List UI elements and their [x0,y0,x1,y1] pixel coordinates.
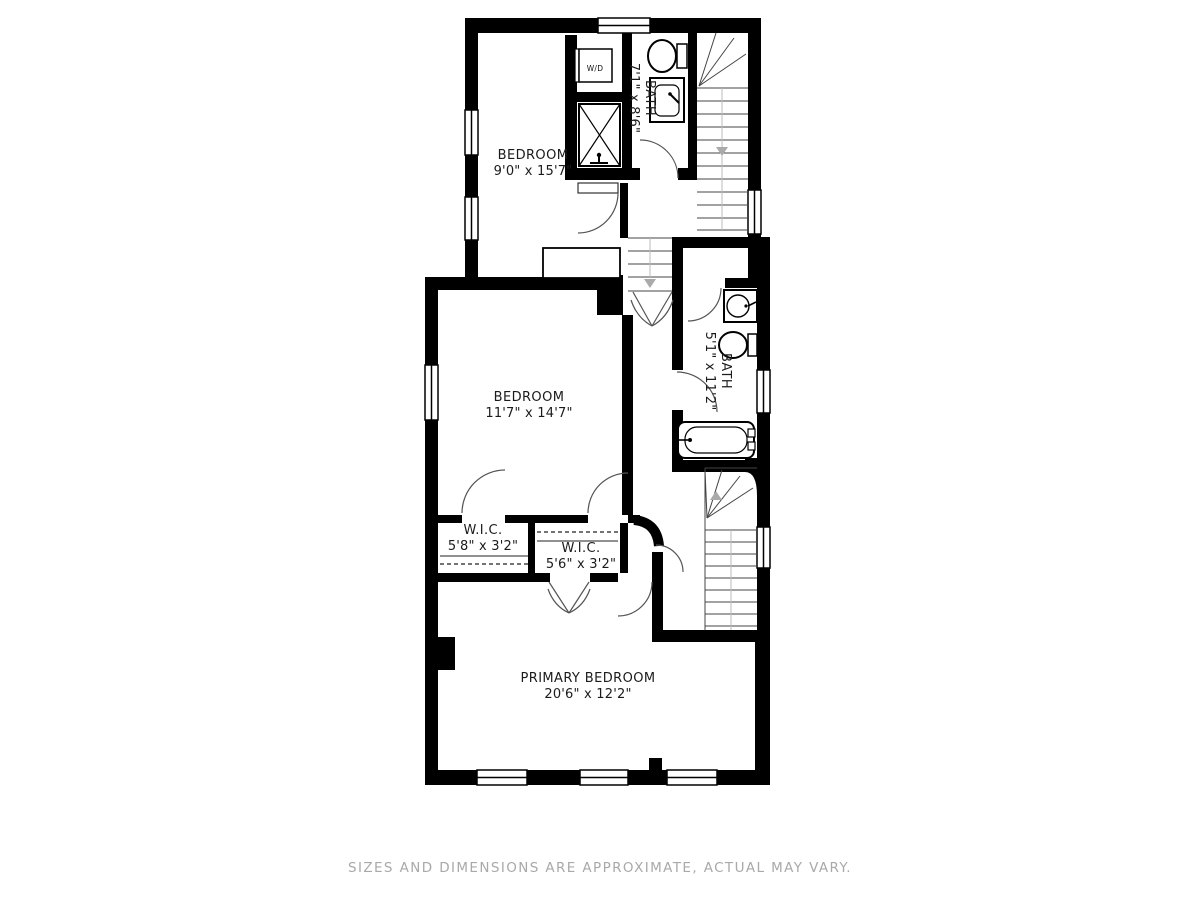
room-label-wic-mid: W.I.C. 5'6" x 3'2" [521,541,641,573]
room-label-primary: PRIMARY BEDROOM 20'6" x 12'2" [488,671,688,703]
floor-plan-svg [0,0,1200,900]
window-bottom-3 [667,770,717,785]
stair-arrow-up-icon [710,491,722,500]
window-right-2 [757,370,770,413]
door-bedroom-top [578,183,618,233]
dresser [543,248,620,278]
room-label-bath-top: BATH 7'1" x 8'6" [625,38,657,158]
window-top [598,18,650,33]
window-left-2 [465,197,478,240]
stair-arrow-down-icon [716,147,728,156]
room-label-bedroom-top: BEDROOM 9'0" x 15'7" [463,148,603,180]
window-bottom-2 [580,770,628,785]
door-wic-left [462,470,505,513]
room-label-bedroom-mid: BEDROOM 11'7" x 14'7" [459,390,599,422]
stairs-mid-flight [628,238,672,291]
door-hall-double [631,292,673,326]
window-bottom-1 [477,770,527,785]
door-primary [618,582,652,616]
window-left-3 [425,365,438,420]
disclaimer-text: SIZES AND DIMENSIONS ARE APPROXIMATE, AC… [0,860,1200,876]
room-label-bath-mid: BATH 5'1" x 11'2" [701,311,733,431]
washer-dryer-label: W/D [580,61,610,77]
stair-arrow-down-icon [644,279,656,288]
window-right-3 [757,527,770,568]
floor-plan-page: BEDROOM 9'0" x 15'7" BATH 7'1" x 8'6" W/… [0,0,1200,900]
window-right-1 [748,190,761,234]
stairs-lower-flight [705,468,757,630]
stairs-upper-flight [697,33,748,230]
door-wic-mid-double [548,582,590,613]
